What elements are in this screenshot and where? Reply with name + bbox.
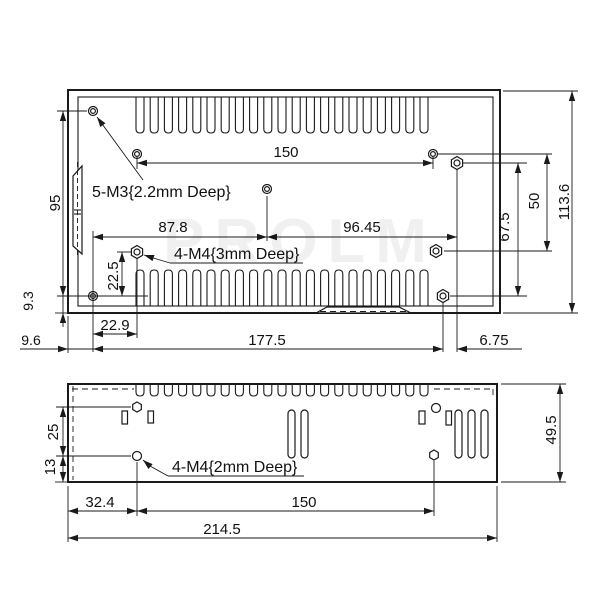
dim-arrow: [68, 508, 78, 514]
dim-arrow: [137, 508, 147, 514]
m4-hole: [133, 452, 142, 461]
vent-slot: [150, 97, 158, 133]
vent-slot: [193, 97, 201, 133]
dim-arrow: [60, 472, 66, 482]
vent-slot: [193, 384, 201, 396]
dim-arrow: [137, 160, 147, 166]
vent-slot: [221, 97, 229, 133]
vent-slot: [392, 384, 400, 396]
vent-slot: [278, 97, 286, 133]
vent-slot: [264, 384, 272, 396]
dim-arrow: [60, 111, 66, 121]
dim-arrow: [141, 458, 153, 469]
dim-arrow: [60, 313, 66, 323]
dim-label-9-3: 9.3: [20, 291, 36, 311]
vent-slot: [136, 97, 144, 133]
vent-slot: [292, 97, 300, 133]
m3-hole: [263, 185, 272, 194]
vent-slot: [264, 97, 272, 133]
dim-arrow: [569, 303, 575, 313]
side-vent-slot: [301, 410, 308, 458]
vent-slot: [420, 384, 428, 396]
dim-label-150-top: 150: [273, 144, 298, 161]
punch-cutout: [446, 411, 452, 425]
m4-hole: [451, 157, 462, 170]
m4-hole-bore: [454, 160, 460, 166]
m4-hole: [133, 402, 142, 412]
dim-arrow: [544, 241, 550, 251]
m3-hole-bore: [431, 152, 436, 157]
dim-arrow: [143, 252, 154, 261]
dim-arrow: [68, 535, 78, 541]
side-vent-slot: [481, 410, 488, 458]
dim-arrow: [93, 234, 103, 240]
note-m4-side-callout: 4-M4{2mm Deep}: [172, 459, 298, 476]
vent-slot: [377, 97, 385, 133]
vent-slot: [164, 384, 172, 396]
vent-slot: [306, 97, 314, 133]
dim-arrow: [515, 163, 521, 173]
note-m3-callout: 5-M3{2.2mm Deep}: [92, 184, 231, 201]
m4-hole: [432, 404, 441, 413]
dim-arrow: [94, 115, 105, 127]
top-view-outer-wall: [68, 90, 500, 313]
dim-label-49-5: 49.5: [543, 415, 560, 444]
dim-arrow: [557, 472, 563, 482]
vent-slot: [321, 97, 329, 133]
engineering-drawing: PROLM150959.3113.65067.587.896.4522.522.…: [0, 0, 600, 600]
dim-arrow: [60, 456, 66, 466]
vent-slot: [406, 384, 414, 396]
punch-cutout: [122, 411, 128, 424]
m4-hole: [430, 450, 439, 460]
dim-arrow: [60, 446, 66, 456]
m4-hole: [437, 290, 448, 303]
dim-arrow: [119, 252, 125, 262]
vent-slot: [321, 384, 329, 396]
dim-arrow: [544, 154, 550, 164]
vent-slot: [292, 384, 300, 396]
vent-slot: [179, 384, 187, 396]
vent-slot: [392, 97, 400, 133]
drawing-canvas: PROLM150959.3113.65067.587.896.4522.522.…: [0, 0, 600, 600]
vent-slot: [335, 384, 343, 396]
dim-arrow: [424, 508, 434, 514]
dim-label-96-45: 96.45: [343, 219, 381, 236]
vent-slot: [221, 384, 229, 396]
dim-arrow: [60, 286, 66, 296]
dim-arrow: [557, 384, 563, 394]
side-vent-slot: [455, 410, 462, 458]
bottom-boss: [316, 307, 411, 313]
dim-arrow: [423, 160, 433, 166]
m4-hole: [131, 246, 142, 259]
dim-label-25: 25: [45, 424, 62, 441]
dim-arrow: [457, 346, 467, 352]
punch-cutout: [419, 411, 425, 424]
vent-slot: [335, 97, 343, 133]
watermark: PROLM: [163, 207, 437, 276]
dim-label-50: 50: [526, 193, 543, 210]
vent-slot: [235, 384, 243, 396]
vent-slot: [363, 97, 371, 133]
vent-slot: [349, 97, 357, 133]
vent-slot: [250, 97, 258, 133]
m3-hole-bore: [135, 152, 140, 157]
dimension-labels: PROLM150959.3113.65067.587.896.4522.522.…: [20, 144, 573, 538]
dim-label-13: 13: [42, 459, 59, 476]
side-vent-slot: [468, 410, 475, 458]
dim-label-32-4: 32.4: [85, 494, 114, 511]
vent-slot: [306, 384, 314, 396]
dim-label-95: 95: [47, 195, 64, 212]
dim-label-87-8: 87.8: [158, 219, 187, 236]
dim-arrow: [487, 535, 497, 541]
vent-slot: [278, 384, 286, 396]
dim-label-113-6: 113.6: [556, 184, 573, 220]
vent-slot: [363, 384, 371, 396]
vent-slot: [406, 97, 414, 133]
dim-arrow: [447, 234, 457, 240]
vent-slot: [136, 384, 144, 396]
vent-slot: [420, 97, 428, 133]
dim-label-22-5: 22.5: [105, 261, 122, 290]
dim-arrow: [433, 346, 443, 352]
note-m4-top-callout: 4-M4{3mm Deep}: [174, 246, 300, 263]
vent-slot: [150, 384, 158, 396]
dim-arrow: [515, 286, 521, 296]
dim-label-22-9: 22.9: [100, 317, 129, 334]
vent-slot: [349, 384, 357, 396]
vent-slot: [207, 97, 215, 133]
m3-hole: [89, 107, 98, 116]
vent-slot: [150, 270, 158, 306]
dim-label-214-5: 214.5: [203, 521, 241, 538]
vent-slot: [207, 384, 215, 396]
dim-arrow: [569, 91, 575, 101]
dim-label-150-side: 150: [291, 494, 316, 511]
dim-arrow: [127, 508, 137, 514]
side-vent-slot: [288, 410, 295, 458]
dim-label-6-75: 6.75: [479, 332, 508, 349]
dim-label-67-5: 67.5: [496, 212, 513, 241]
dim-label-177-5: 177.5: [248, 332, 286, 349]
dim-label-9-6: 9.6: [21, 332, 41, 348]
punch-cutout: [148, 411, 154, 423]
vent-slot: [250, 384, 258, 396]
vent-slot: [164, 97, 172, 133]
m4-hole-bore: [134, 249, 140, 255]
m3-hole-bore: [265, 187, 270, 192]
dim-arrow: [93, 346, 103, 352]
vent-slot: [377, 384, 385, 396]
vent-slot: [235, 97, 243, 133]
dim-arrow: [60, 407, 66, 417]
m3-hole-bore: [91, 109, 96, 114]
vent-slot: [179, 97, 187, 133]
m4-hole-bore: [440, 293, 446, 299]
dim-arrow: [58, 346, 68, 352]
